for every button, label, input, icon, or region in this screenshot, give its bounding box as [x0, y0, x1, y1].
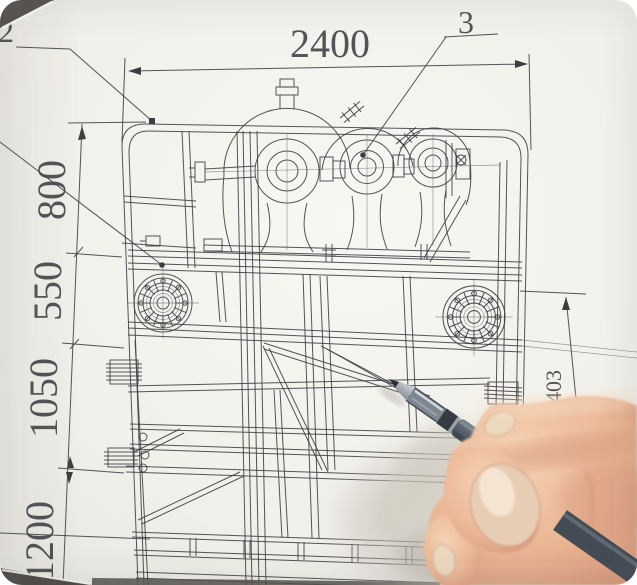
dimension-label-800: 800 — [29, 160, 74, 220]
blueprint-scene: 2400 800 550 1050 1200 1403 2 3 — [0, 0, 637, 585]
dimension-label-top-width: 2400 — [290, 21, 370, 66]
dimension-label-550: 550 — [25, 261, 70, 321]
dimension-label-1200: 1200 — [17, 501, 62, 581]
photo-of-technical-drawing: 2400 800 550 1050 1200 1403 2 3 — [0, 0, 637, 585]
dimension-label-1050: 1050 — [21, 358, 66, 438]
callout-3-label: 3 — [458, 4, 474, 40]
